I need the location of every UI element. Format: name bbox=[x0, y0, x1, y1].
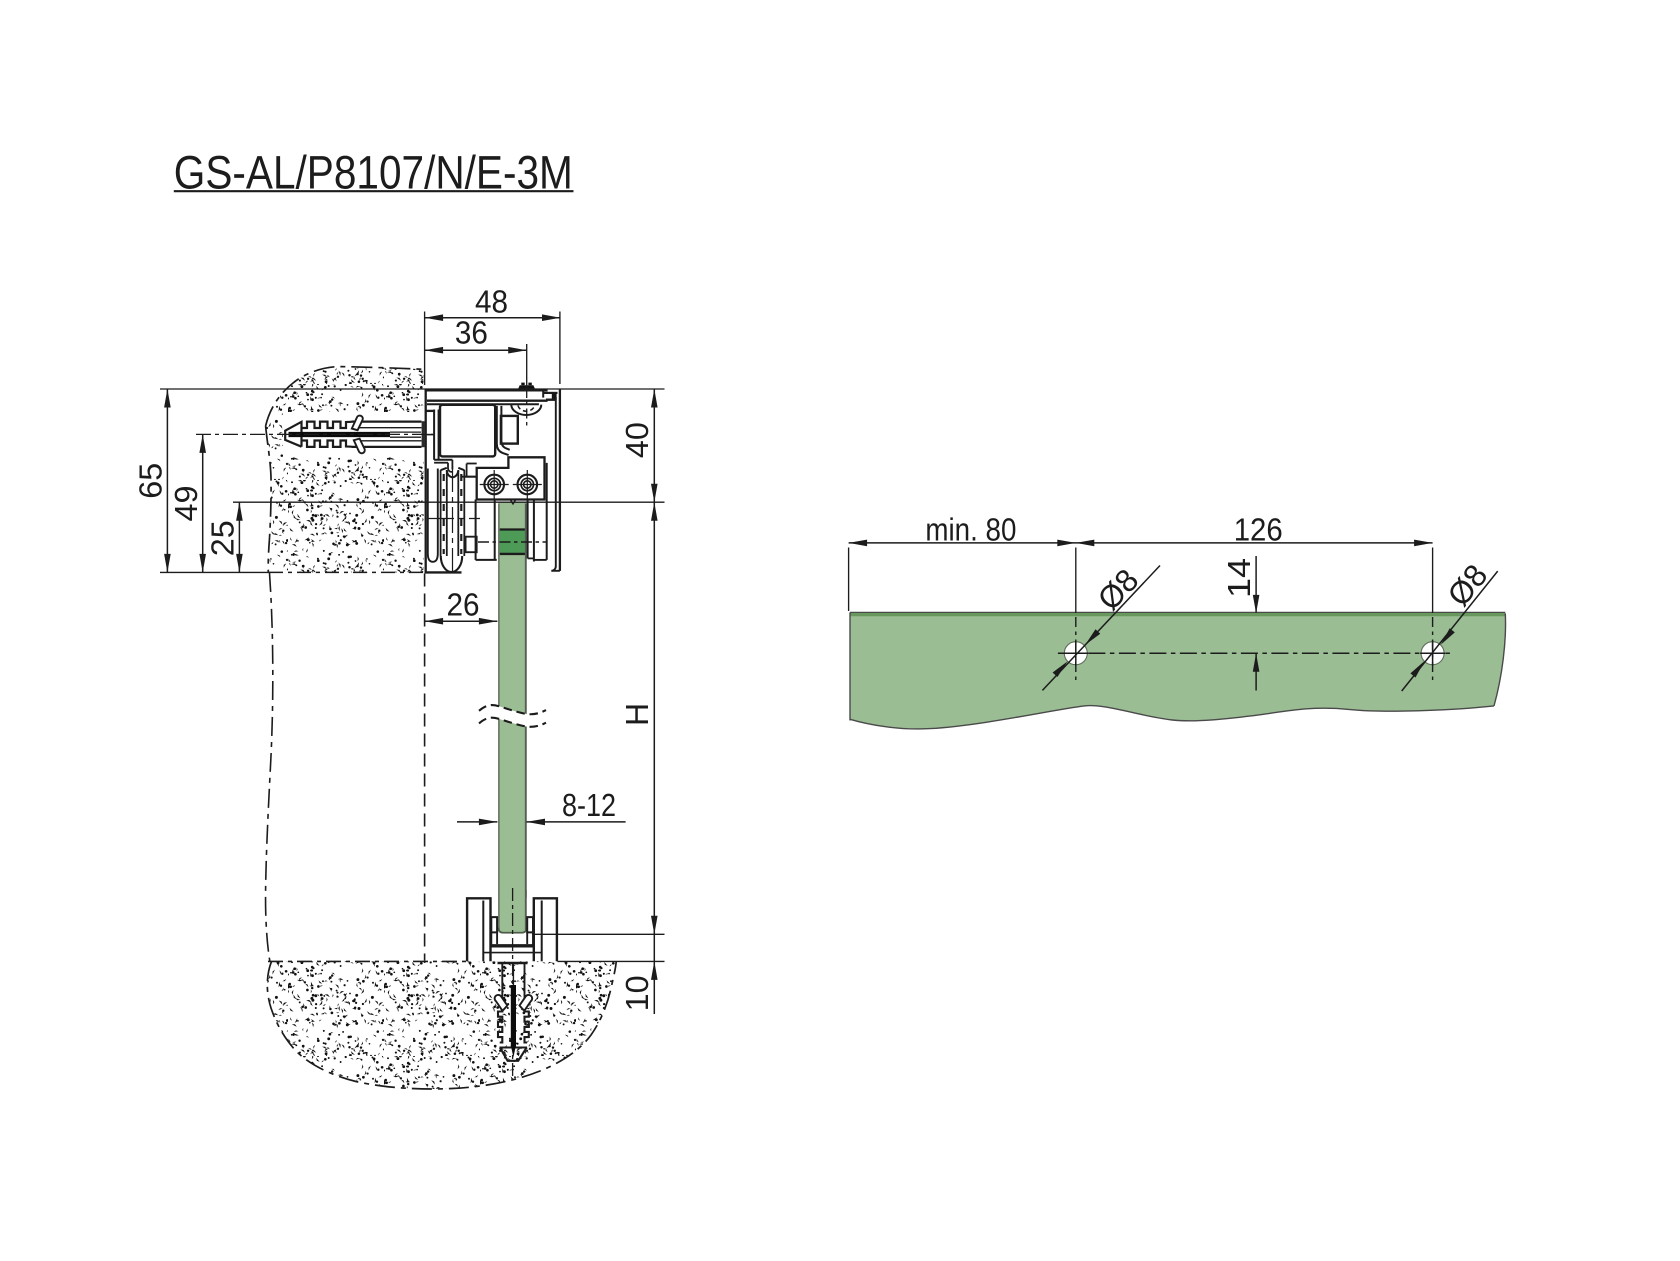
svg-text:126: 126 bbox=[1234, 512, 1283, 548]
svg-text:26: 26 bbox=[447, 587, 480, 623]
svg-text:min. 80: min. 80 bbox=[925, 512, 1016, 548]
svg-text:25: 25 bbox=[205, 520, 241, 556]
svg-text:8-12: 8-12 bbox=[562, 787, 616, 823]
svg-text:49: 49 bbox=[168, 486, 204, 522]
svg-text:10: 10 bbox=[619, 975, 655, 1011]
svg-text:H: H bbox=[619, 703, 655, 726]
svg-text:14: 14 bbox=[1221, 558, 1257, 598]
svg-text:40: 40 bbox=[619, 422, 655, 458]
svg-text:65: 65 bbox=[133, 463, 169, 499]
svg-text:36: 36 bbox=[455, 315, 488, 351]
